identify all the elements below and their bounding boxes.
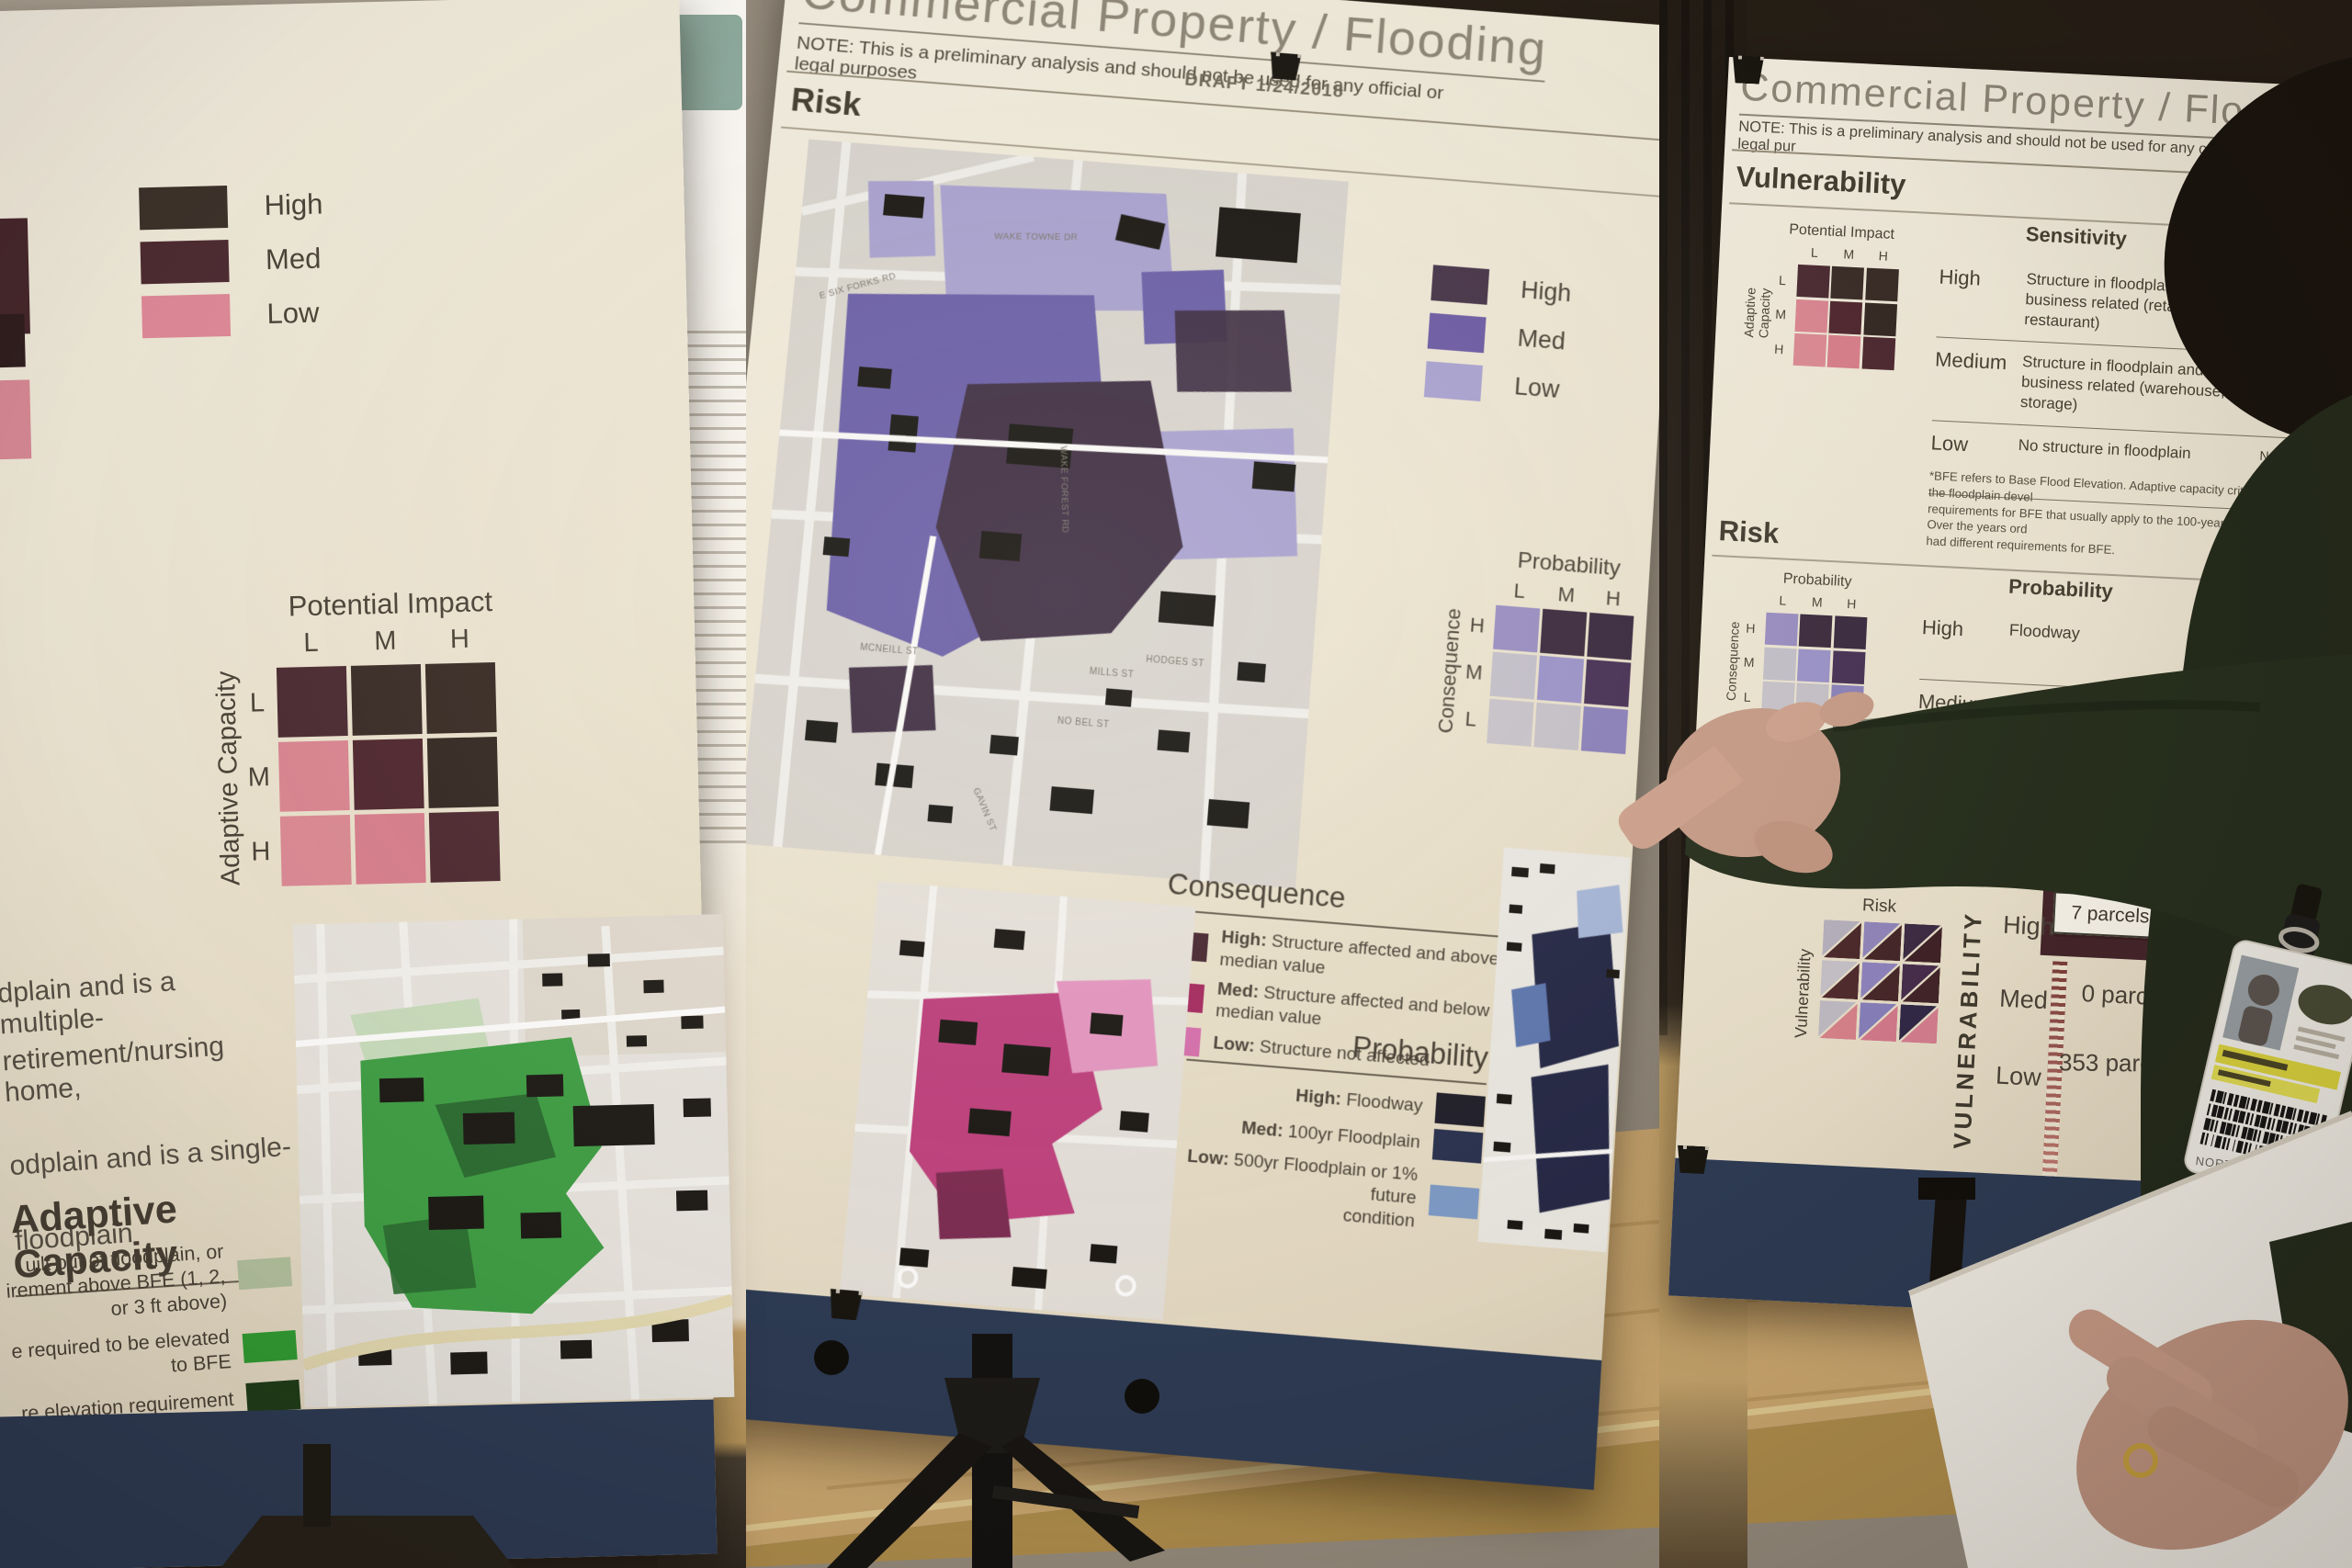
risk-matrix: ProbabilityConsequenceHMLLMH: [1433, 542, 1638, 754]
legend-swatch: [141, 240, 230, 284]
matrix-row-label: L: [1461, 696, 1481, 742]
legend-item: Low: [1424, 361, 1566, 408]
legend-label: Med: [1517, 324, 1566, 355]
vulnerability-legend: HighMedLow: [139, 183, 326, 350]
matrix-cell: [280, 815, 352, 886]
matrix-cell: [1490, 652, 1537, 700]
combo-cell: [1899, 1004, 1939, 1043]
potential-impact-matrix: Potential ImpactAdaptive CapacityLMHLMH: [209, 585, 501, 887]
risk-table: Probability Consequence* High Floodway S…: [1914, 570, 2345, 810]
matrix-cell: [1799, 615, 1833, 649]
matrix-cell: [1584, 660, 1631, 707]
binder-clip: [1677, 1145, 1709, 1175]
matrix-cell: [1534, 703, 1581, 750]
matrix-cell: [1827, 335, 1861, 369]
combo-cell: [1818, 1000, 1858, 1040]
consequence-header: Consequence*: [2215, 585, 2345, 615]
legend-item: High: [1430, 265, 1572, 311]
matrix-cell: [1540, 609, 1587, 657]
legend-label: High: [264, 187, 323, 222]
vulnerability-axis-label: VULNERABILITY: [1948, 873, 1990, 1149]
matrix-row-label: M: [1743, 646, 1755, 679]
parcel-count-low: 353 parcels: [2059, 1048, 2183, 1078]
matrix-cell: [351, 664, 423, 736]
legend-label: High: [1520, 276, 1572, 307]
text-fragment: retirement/nursing home,: [2, 1027, 290, 1109]
combo-cell: [1901, 964, 1940, 1003]
risk-vulnerability-combo-matrix: RiskVulnerability: [1792, 893, 1944, 1045]
poster-left-vulnerability: HighMedLow Potential ImpactAdaptive Capa…: [0, 0, 718, 1568]
matrix-row-label: L: [1776, 264, 1788, 297]
poster-right-vulnerability-risk: Commercial Property / Flooding NOTE: Thi…: [1668, 57, 2352, 1327]
matrix-cell: [1832, 650, 1866, 684]
row-adaptive: Structure required to b to BFE: [2254, 364, 2352, 429]
matrix-cell: [1487, 699, 1533, 747]
poster-right-draft: DRAFT 1/2: [2287, 152, 2352, 173]
probability-map-navy: [1478, 847, 1631, 1252]
matrix-cell: [1830, 684, 1864, 718]
legend-text: High: Floodway: [1295, 1085, 1423, 1118]
matrix-cell: [1796, 265, 1830, 299]
matrix-row-label: H: [1745, 612, 1757, 645]
matrix-cell: [425, 662, 497, 734]
matrix-title: Probability: [1766, 570, 1869, 592]
matrix-cell: [1794, 299, 1828, 333]
matrix-cell: [427, 737, 499, 808]
matrix-cell: [355, 813, 426, 885]
matrix-col-label: L: [1497, 578, 1543, 609]
legend-swatch: [1428, 313, 1487, 354]
matrix-cell: [1830, 266, 1864, 300]
row-level: High: [1920, 615, 2010, 671]
consequence-map-pink: [840, 881, 1196, 1320]
matrix-col-label: H: [1835, 595, 1868, 617]
matrix-row-label: H: [1467, 603, 1487, 648]
edge-map-fragment: [0, 379, 31, 460]
mini-risk-matrix: ProbabilityConsequenceHMLLMH: [1723, 569, 1869, 718]
matrix-cell: [429, 811, 501, 883]
legend-swatch: [243, 1330, 298, 1363]
legend-swatch: [1429, 1184, 1480, 1219]
legend-item: e required to be elevatedto BFE: [0, 1320, 298, 1393]
legend-swatch: [1432, 1129, 1483, 1164]
parcel-row-med-label: Med: [1999, 985, 2049, 1016]
legend-swatch: [1424, 361, 1483, 401]
binder-clip: [1732, 55, 1764, 85]
matrix-col-label: H: [424, 624, 495, 664]
matrix-cell: [1795, 682, 1829, 716]
matrix-row-axis-label: Adaptive Capacity: [1740, 262, 1774, 364]
row-desc: Structure in floodplain and not business…: [2019, 352, 2256, 424]
combo-cell: [1860, 962, 1900, 1001]
legend-swatch: [245, 1380, 300, 1413]
row-cons: [2235, 751, 2336, 799]
legend-text: Med: 100yr Floodplain: [1240, 1117, 1420, 1155]
matrix-col-label: M: [1543, 581, 1589, 613]
matrix-cell: [1863, 302, 1897, 336]
legend-item: Med: [1428, 313, 1569, 360]
vulnerability-heading: Vulnerability: [1736, 161, 1906, 202]
matrix-col-label: M: [350, 626, 421, 666]
combo-cell: [1859, 1002, 1898, 1042]
matrix-row-label: H: [249, 817, 273, 887]
matrix-row-label: L: [1741, 681, 1753, 714]
legend-swatch: [1435, 1092, 1486, 1127]
matrix-col-label: H: [1590, 585, 1636, 616]
row-prob: 100-yr Floodplain: [2005, 694, 2240, 728]
combo-cell: [1862, 921, 1902, 961]
matrix-cell: [1588, 613, 1634, 660]
row-prob: 500-year floodplain, or 1% fut condition: [2002, 739, 2238, 794]
risk-heading: Risk: [1718, 514, 1780, 550]
legend-label: Med: [266, 243, 322, 276]
row-level: Medium: [1933, 348, 2023, 413]
row-level: Medium: [1917, 690, 2006, 718]
parcel-count-high: 7 parcels: [2052, 891, 2168, 939]
risk-map-legend: HighMedLow: [1423, 265, 1572, 421]
matrix-row-axis-label: Consequence: [1723, 611, 1742, 713]
risk-section-heading: Risk: [789, 82, 863, 124]
legend-swatch: [1430, 265, 1489, 305]
matrix-cell: [1493, 605, 1540, 653]
matrix-col-label: M: [1801, 594, 1834, 616]
row-adaptive: or ele BFE (1, 2, or 3 ft above): [2258, 281, 2352, 346]
matrix-cell: [1763, 647, 1797, 681]
matrix-row-label: M: [247, 742, 271, 813]
meeting-room-photo: Commercial Property / Flooding NOTE: Thi…: [0, 0, 2352, 1568]
matrix-title: Potential Impact: [287, 585, 494, 623]
matrix-cell: [1833, 615, 1867, 649]
sensitivity-header: Sensitivity: [2025, 222, 2352, 263]
matrix-col-label: L: [276, 627, 346, 668]
parcel-count-med: 0 parcels: [2081, 979, 2179, 1012]
probability-legend: Probability High: FloodwayMed: 100yr Flo…: [1174, 1017, 1489, 1244]
legend-label: Low: [266, 297, 320, 331]
row-cons: Structure affected median value: [2241, 631, 2343, 688]
row-cons: S: [2239, 705, 2339, 734]
combo-top-label: Risk: [1861, 896, 1943, 919]
row-desc: Structure in floodplain and business rel…: [2024, 269, 2261, 342]
matrix-cell: [1797, 649, 1831, 682]
matrix-row-label: L: [245, 668, 269, 739]
matrix-col-label: L: [1798, 244, 1831, 266]
matrix-cell: [353, 739, 424, 810]
row-level: High: [1937, 265, 2027, 330]
matrix-col-label: M: [1832, 246, 1865, 268]
matrix-cell: [1829, 300, 1863, 334]
matrix-row-axis-label: Adaptive Capacity: [211, 669, 247, 888]
matrix-cell: [1792, 333, 1826, 367]
legend-text: e required to be elevatedto BFE: [11, 1325, 232, 1389]
legend-item: Low: [141, 291, 326, 338]
matrix-row-label: H: [1773, 333, 1785, 366]
matrix-cell: [1761, 682, 1795, 716]
parcel-count-col2: 12: [2191, 891, 2278, 935]
street-label: WAKE TOWNE DR: [994, 231, 1078, 243]
binder-clip: [1269, 52, 1301, 81]
matrix-row-label: M: [1775, 298, 1787, 331]
matrix-cell: [278, 740, 350, 812]
matrix-cell: [1537, 656, 1584, 704]
probability-header: Probability: [2008, 575, 2217, 609]
matrix-col-label: L: [1766, 592, 1799, 615]
combo-cell: [1822, 919, 1861, 959]
combo-side-label: Vulnerability: [1792, 919, 1816, 1039]
matrix-title: Potential Impact: [1782, 221, 1900, 243]
mini-impact-matrix: Potential ImpactAdaptive CapacityLMHLMH: [1740, 220, 1901, 370]
legend-text: Low: 500yr Floodplain or 1% futurecondit…: [1174, 1145, 1419, 1233]
row-level: Low: [1915, 736, 2004, 783]
matrix-cell: [1764, 613, 1798, 647]
probability-legend-items: High: FloodwayMed: 100yr FloodplainLow: …: [1174, 1072, 1486, 1238]
row-prob: Floodway: [2007, 620, 2244, 683]
text-fragment: odplain and is a single-: [8, 1132, 295, 1183]
poster-left-footer-band: [0, 1399, 718, 1568]
parcel-row-low-label: Low: [1995, 1062, 2041, 1092]
legend-label: Low: [1513, 372, 1560, 403]
legend-swatch: [141, 294, 231, 338]
matrix-row-label: M: [1464, 649, 1485, 695]
striped-bar: [2190, 1004, 2211, 1124]
adaptive-capacity-map-green: [293, 914, 735, 1407]
street-label: WAKE FOREST RD: [1058, 446, 1070, 533]
combo-cell: [1903, 923, 1942, 963]
matrix-col-label: H: [1867, 248, 1900, 270]
poster-middle-risk: Commercial Property / Flooding NOTE: Thi…: [642, 0, 1682, 1490]
legend-swatch: [139, 186, 228, 230]
legend-text: uilt out of floodplain, orirement above …: [4, 1239, 228, 1328]
matrix-cell: [277, 666, 348, 738]
legend-item: Med: [141, 237, 325, 284]
legend-item: High: [139, 183, 323, 230]
matrix-cell: [1861, 336, 1895, 370]
edge-map-fragment: [0, 313, 26, 367]
combo-cell: [1820, 960, 1860, 999]
matrix-cell: [1581, 706, 1628, 754]
legend-swatch: [237, 1258, 292, 1291]
parcel-row-high-label: High: [2002, 911, 2054, 942]
matrix-cell: [1865, 268, 1899, 302]
matrix-title: Probability: [1500, 547, 1638, 583]
risk-map-purple: WAKE TOWNE DR E SIX FORKS RD WAKE FOREST…: [739, 140, 1349, 889]
